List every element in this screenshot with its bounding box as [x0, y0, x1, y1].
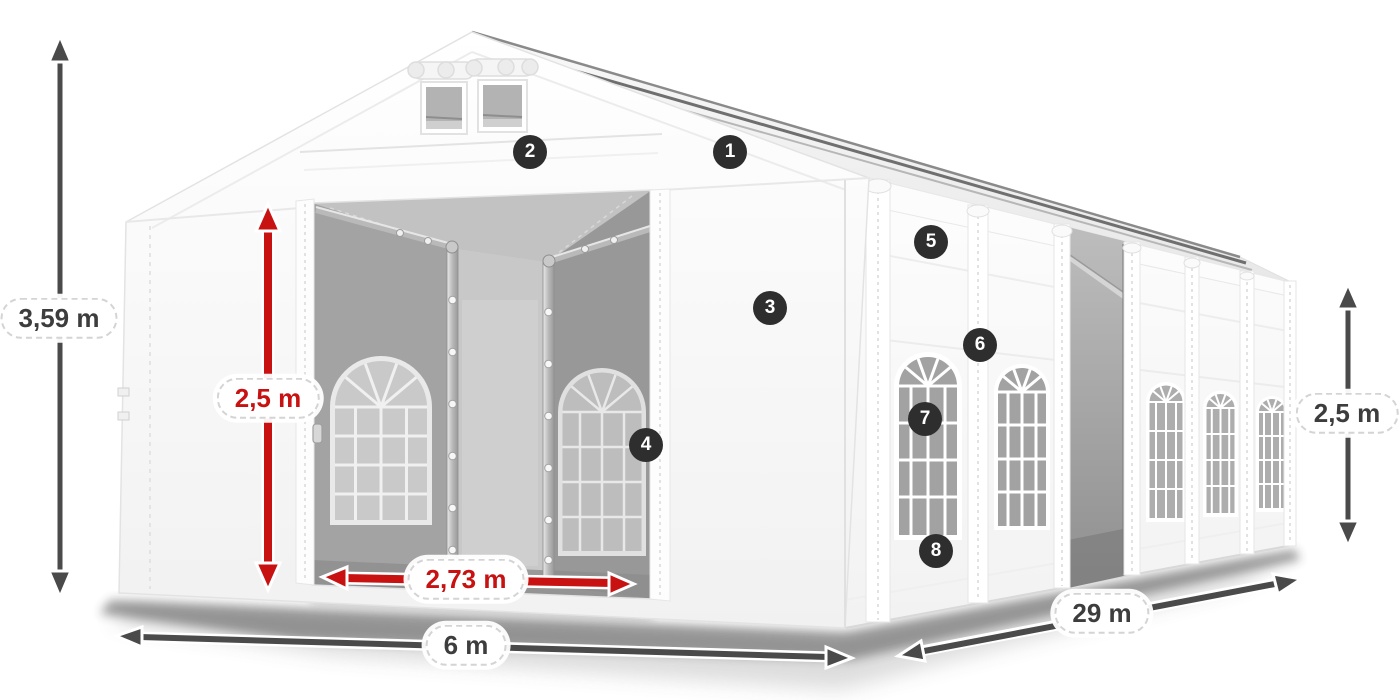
vent-rolls [408, 59, 538, 79]
feature-marker-6: 6 [963, 328, 997, 362]
feature-marker-1: 1 [713, 135, 747, 169]
tent-dimension-diagram: 3,59 m 2,5 m 2,73 m 6 m 29 m 2,5 m 1 2 3… [0, 0, 1400, 700]
feature-marker-7: 7 [908, 402, 942, 436]
door-handle [313, 424, 322, 443]
dimension-label-side-height: 2,5 m [1296, 393, 1399, 434]
interior-window-left [330, 356, 432, 525]
feature-marker-8: 8 [919, 534, 953, 568]
dimension-label-door-width: 2,73 m [408, 559, 525, 600]
side-window-5 [1256, 396, 1288, 512]
side-window-4 [1203, 391, 1238, 518]
dimension-label-width: 6 m [426, 625, 507, 666]
feature-marker-2: 2 [513, 135, 547, 169]
feature-marker-5: 5 [914, 225, 948, 259]
tent-side-wall [845, 178, 1296, 628]
feature-marker-3: 3 [753, 291, 787, 325]
tent-illustration [0, 0, 1400, 700]
side-window-2 [994, 364, 1050, 530]
dimension-label-length: 29 m [1054, 593, 1149, 634]
side-window-3 [1146, 382, 1186, 522]
dimension-label-door-height: 2,5 m [217, 378, 320, 419]
feature-marker-4: 4 [629, 428, 663, 462]
side-window-1 [894, 352, 962, 540]
interior-window-right [558, 368, 646, 556]
tent-interior [312, 190, 652, 599]
side-open-section [1068, 227, 1128, 588]
dimension-label-total-height: 3,59 m [1, 298, 118, 339]
